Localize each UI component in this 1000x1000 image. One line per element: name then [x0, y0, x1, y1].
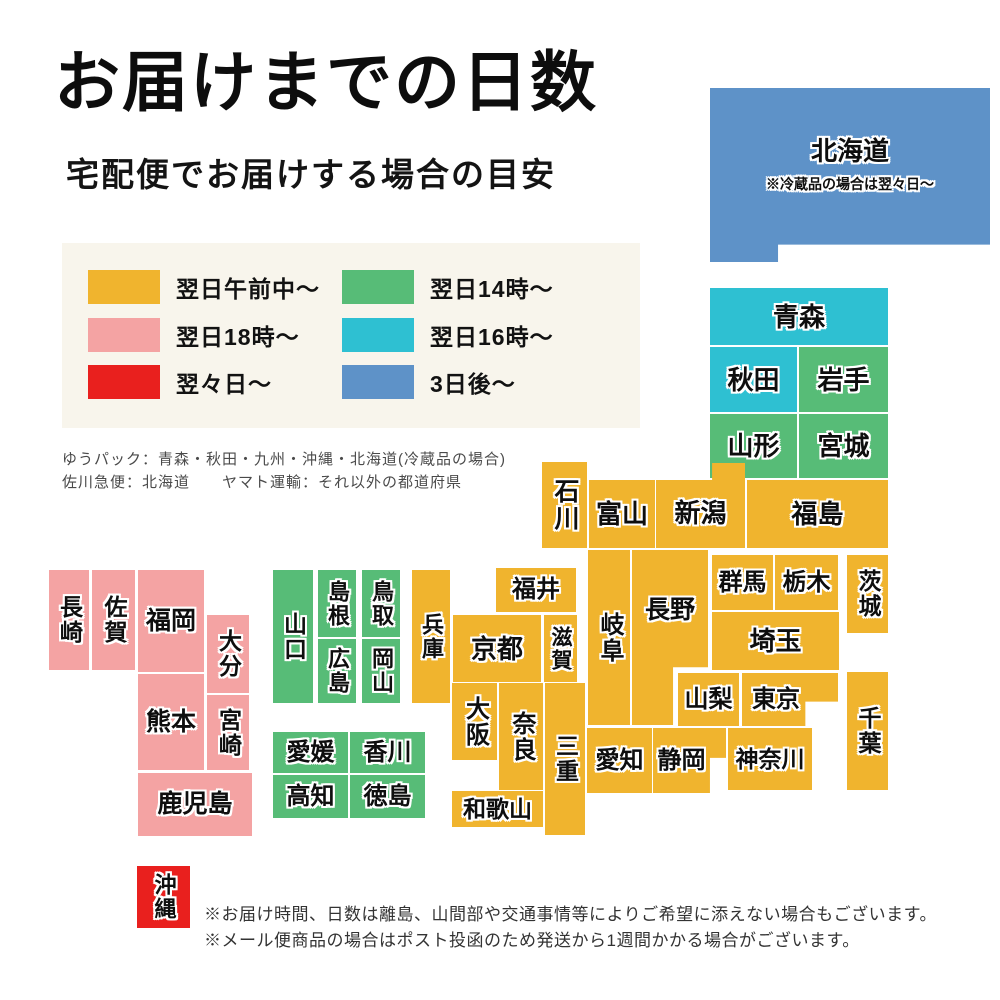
- map-tile-fukushima: 福島: [747, 480, 888, 548]
- prefecture-label: 岡山: [370, 647, 392, 695]
- prefecture-label: 青森: [773, 304, 825, 330]
- legend-item: 翌々日〜: [88, 365, 368, 399]
- prefecture-label: 岐阜: [597, 612, 621, 664]
- map-tile-nara: 奈良: [499, 683, 543, 790]
- legend-label: 翌日14時〜: [430, 270, 554, 304]
- prefecture-label: 島根: [326, 580, 348, 628]
- legend-swatch-gold: [88, 270, 160, 304]
- prefecture-label: 奈良: [509, 711, 533, 763]
- prefecture-label: 石川: [552, 478, 577, 532]
- prefecture-label: 愛知: [596, 749, 644, 773]
- prefecture-label: 北海道: [811, 138, 889, 164]
- prefecture-label: 和歌山: [463, 798, 532, 821]
- map-tile-tokushima: 徳島: [350, 775, 425, 818]
- prefecture-label: 新潟: [674, 500, 726, 526]
- legend-label: 翌日18時〜: [176, 318, 300, 352]
- delivery-days-infographic: お届けまでの日数 宅配便でお届けする場合の目安 翌日午前中〜翌日18時〜翌々日〜…: [0, 0, 1000, 1000]
- legend-label: 3日後〜: [430, 365, 516, 399]
- map-tile-aichi: 愛知: [587, 728, 652, 793]
- map-tile-saga: 佐賀: [92, 570, 135, 670]
- map-tile-okayama: 岡山: [362, 639, 400, 703]
- map-tile-tottori: 鳥取: [362, 570, 400, 637]
- map-tile-kanagawa: 神奈川: [728, 728, 812, 790]
- map-tile-tokyo: 東京: [742, 673, 838, 726]
- note-2: ※メール便商品の場合はポスト投函のため発送から1週間かかる場合がございます。: [204, 928, 937, 954]
- prefecture-label: 兵庫: [420, 613, 442, 661]
- map-tile-kagoshima: 鹿児島: [138, 773, 252, 836]
- page-subtitle: 宅配便でお届けする場合の目安: [66, 148, 556, 196]
- legend-swatch-pink: [88, 318, 160, 352]
- prefecture-label: 富山: [596, 501, 648, 527]
- prefecture-label: 岩手: [817, 367, 869, 393]
- prefecture-label: 宮城: [817, 433, 869, 459]
- prefecture-label: 長野: [645, 598, 695, 623]
- map-tile-kochi: 高知: [273, 775, 348, 818]
- map-tile-aomori: 青森: [710, 288, 888, 345]
- legend-item: 翌日午前中〜: [88, 270, 368, 304]
- map-tile-toyama: 富山: [589, 480, 655, 548]
- prefecture-label: 鹿児島: [157, 792, 232, 817]
- map-tile-ibaraki: 茨城: [847, 555, 888, 633]
- prefecture-label: 宮崎: [217, 708, 240, 758]
- prefecture-label: 大阪: [463, 696, 487, 748]
- map-tile-kagawa: 香川: [350, 732, 425, 773]
- legend-item: 翌日18時〜: [88, 318, 368, 352]
- prefecture-label: 千葉: [856, 706, 879, 756]
- prefecture-label: 沖縄: [153, 873, 175, 921]
- prefecture-label: 静岡: [658, 749, 706, 773]
- map-tile-niigata: 新潟: [656, 463, 745, 548]
- legend-item: 翌日16時〜: [342, 318, 622, 352]
- prefecture-label: 福井: [512, 578, 560, 602]
- map-tile-hokkaido: 北海道※冷蔵品の場合は翌々日〜: [710, 88, 990, 262]
- legend-swatch-cyan: [342, 318, 414, 352]
- prefecture-label: 香川: [364, 741, 412, 765]
- map-tile-miyagi: 宮城: [799, 414, 888, 478]
- prefecture-label: 広島: [326, 647, 348, 695]
- map-tile-fukui: 福井: [496, 568, 576, 612]
- bottom-notes: ※お届け時間、日数は離島、山間部や交通事情等によりご希望に添えない場合もございま…: [204, 902, 937, 954]
- legend-label: 翌日午前中〜: [176, 270, 320, 304]
- legend: 翌日午前中〜翌日18時〜翌々日〜翌日14時〜翌日16時〜3日後〜: [62, 243, 640, 428]
- carrier-info: ゆうパック：青森・秋田・九州・沖縄・北海道(冷蔵品の場合) 佐川急便：北海道 ヤ…: [62, 448, 506, 494]
- carrier-line-2: 佐川急便：北海道 ヤマト運輸：それ以外の都道府県: [62, 471, 506, 494]
- prefecture-label: 福島: [791, 501, 843, 527]
- prefecture-label: 佐賀: [102, 595, 125, 645]
- carrier-line-1: ゆうパック：青森・秋田・九州・沖縄・北海道(冷蔵品の場合): [62, 448, 506, 471]
- map-tile-ishikawa: 石川: [542, 462, 587, 548]
- map-tile-kyoto: 京都: [453, 615, 541, 682]
- prefecture-label: 埼玉: [749, 628, 801, 654]
- page-title: お届けまでの日数: [54, 48, 598, 121]
- map-tile-chiba: 千葉: [847, 672, 888, 790]
- legend-swatch-green: [342, 270, 414, 304]
- prefecture-label: 秋田: [727, 367, 779, 393]
- map-tile-shimane: 島根: [318, 570, 356, 637]
- note-1: ※お届け時間、日数は離島、山間部や交通事情等によりご希望に添えない場合もございま…: [204, 902, 937, 928]
- prefecture-label: 徳島: [364, 785, 412, 809]
- map-tile-yamaguchi: 山口: [273, 570, 313, 703]
- legend-swatch-red: [88, 365, 160, 399]
- prefecture-label: 東京: [752, 688, 800, 712]
- prefecture-label: 三重: [554, 734, 577, 784]
- map-tile-ehime: 愛媛: [273, 732, 348, 773]
- legend-item: 3日後〜: [342, 365, 622, 399]
- prefecture-label: 群馬: [719, 571, 767, 595]
- prefecture-label: 栃木: [783, 571, 831, 595]
- legend-item: 翌日14時〜: [342, 270, 622, 304]
- map-tile-iwate: 岩手: [799, 347, 888, 412]
- prefecture-label: 茨城: [856, 569, 879, 619]
- map-tile-gifu: 岐阜: [588, 550, 630, 725]
- prefecture-label: 高知: [287, 785, 335, 809]
- map-tile-okinawa: 沖縄: [137, 866, 190, 928]
- prefecture-label: 滋賀: [550, 626, 571, 672]
- prefecture-label: 山形: [727, 433, 779, 459]
- map-tile-shizuoka: 静岡: [653, 728, 726, 793]
- prefecture-label: 大分: [217, 629, 240, 679]
- map-tile-kumamoto: 熊本: [138, 674, 204, 770]
- map-tile-fukuoka: 福岡: [138, 570, 204, 672]
- prefecture-label: 神奈川: [736, 748, 805, 771]
- prefecture-label: 山口: [282, 612, 305, 662]
- prefecture-label: 鳥取: [370, 580, 392, 628]
- map-tile-tochigi: 栃木: [775, 555, 838, 610]
- map-tile-nagasaki: 長崎: [49, 570, 89, 670]
- map-tile-gunma: 群馬: [712, 555, 773, 610]
- map-tile-saitama: 埼玉: [712, 612, 839, 670]
- legend-label: 翌々日〜: [176, 365, 272, 399]
- map-tile-mie: 三重: [545, 683, 585, 835]
- map-tile-wakayama: 和歌山: [452, 791, 543, 827]
- map-tile-hiroshima: 広島: [318, 639, 356, 703]
- map-tile-miyazaki: 宮崎: [207, 695, 249, 770]
- prefecture-label: 愛媛: [287, 741, 335, 765]
- map-tile-akita: 秋田: [710, 347, 797, 412]
- legend-label: 翌日16時〜: [430, 318, 554, 352]
- map-tile-hyogo: 兵庫: [412, 570, 450, 703]
- hokkaido-refrigerated-note: ※冷蔵品の場合は翌々日〜: [766, 174, 934, 194]
- map-tile-shiga: 滋賀: [544, 615, 577, 682]
- prefecture-label: 長崎: [58, 595, 81, 645]
- prefecture-label: 京都: [471, 636, 523, 662]
- map-tile-yamanashi: 山梨: [678, 673, 739, 726]
- prefecture-label: 山梨: [685, 688, 733, 712]
- map-tile-osaka: 大阪: [452, 683, 497, 760]
- prefecture-label: 熊本: [146, 710, 196, 735]
- prefecture-label: 福岡: [146, 609, 196, 634]
- map-tile-oita: 大分: [207, 615, 249, 693]
- legend-swatch-blue: [342, 365, 414, 399]
